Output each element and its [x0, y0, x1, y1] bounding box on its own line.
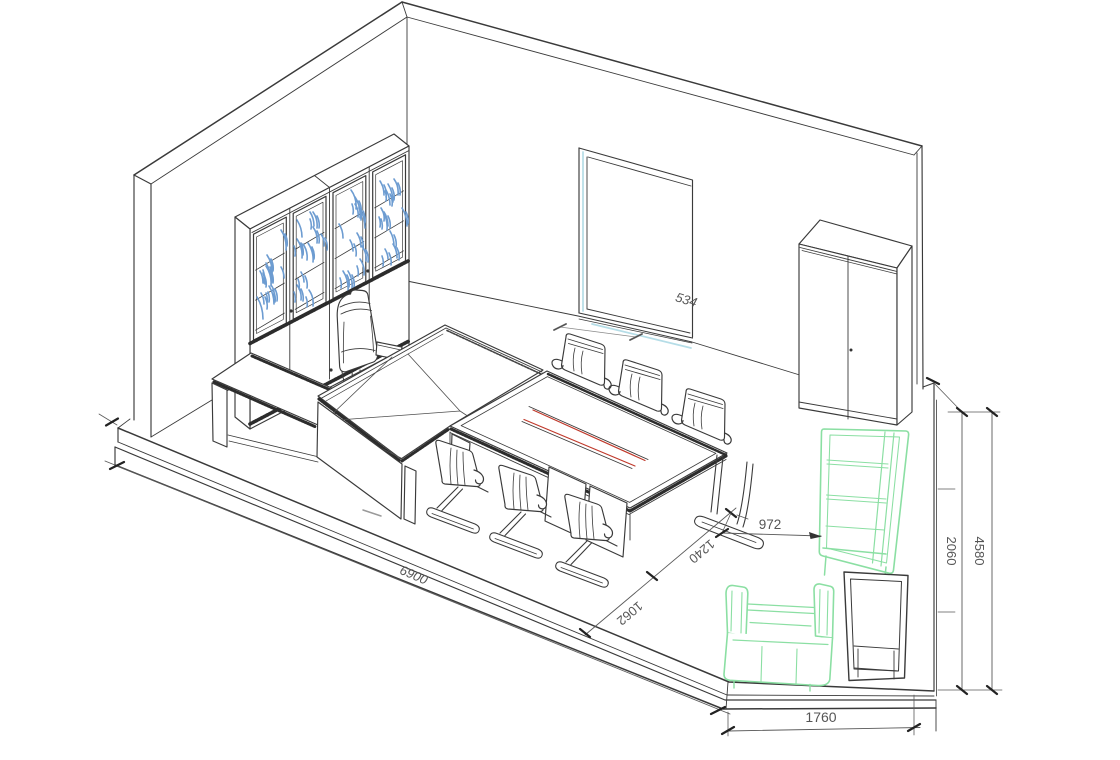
svg-text:2060: 2060	[944, 537, 959, 566]
svg-text:534: 534	[674, 289, 699, 310]
svg-text:4580: 4580	[972, 537, 987, 566]
svg-text:6900: 6900	[398, 562, 431, 587]
svg-text:1760: 1760	[805, 709, 836, 725]
svg-text:1240: 1240	[686, 536, 718, 566]
svg-text:972: 972	[759, 517, 782, 532]
svg-text:1062: 1062	[614, 598, 646, 628]
